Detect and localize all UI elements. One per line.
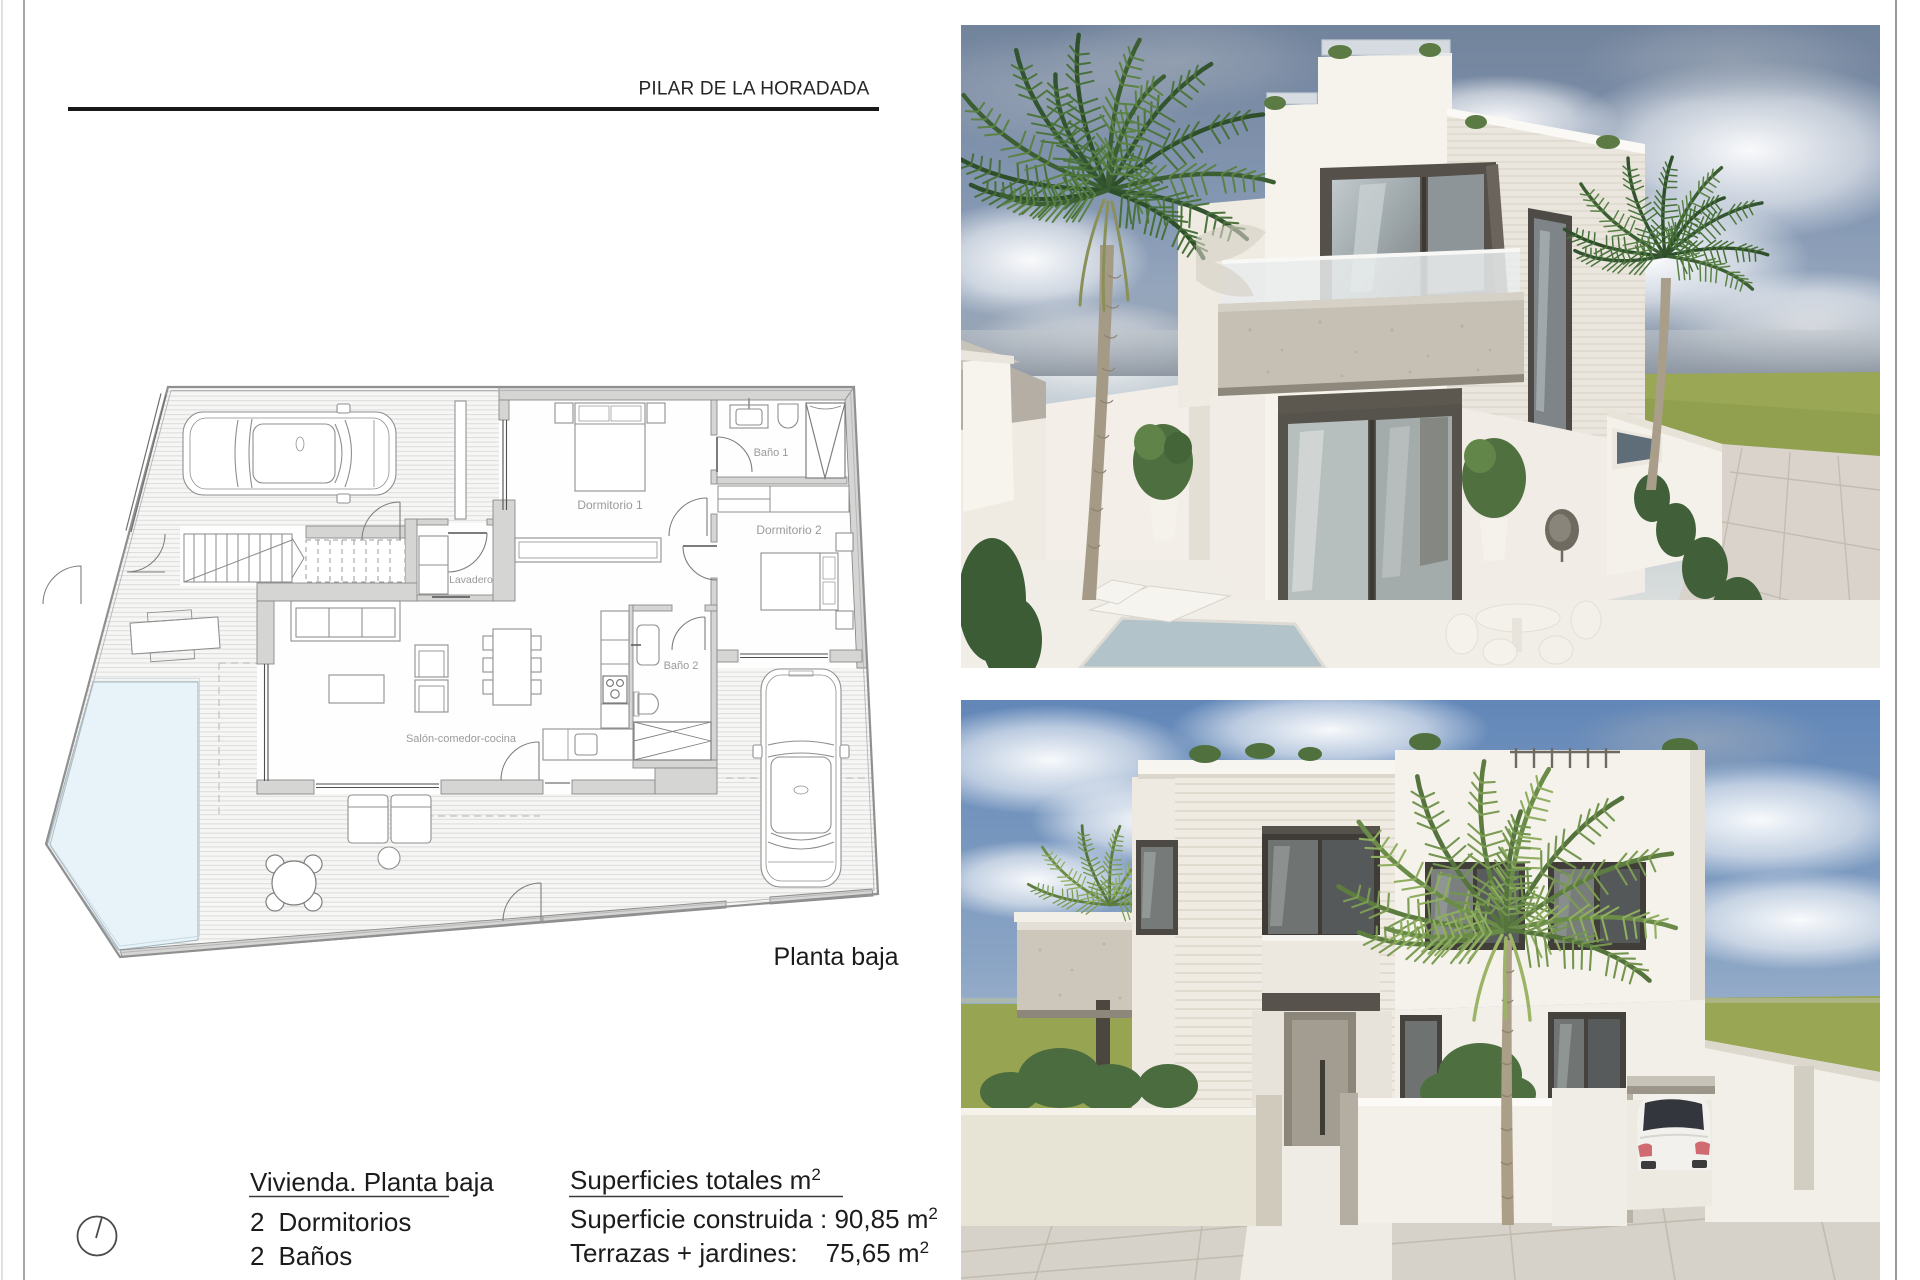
svg-text:Planta baja: Planta baja (773, 943, 898, 971)
svg-text:Salón-comedor-cocina: Salón-comedor-cocina (406, 733, 517, 745)
svg-text:Superficies totales m2: Superficies totales m2 (570, 1165, 821, 1195)
svg-text:Vivienda. Planta baja: Vivienda. Planta baja (250, 1167, 494, 1197)
svg-text:Baño 1: Baño 1 (754, 447, 789, 459)
svg-text:PILAR DE LA HORADADA: PILAR DE LA HORADADA (638, 79, 869, 100)
svg-text:2Dormitorios: 2Dormitorios (250, 1207, 411, 1237)
svg-text:Baño 2: Baño 2 (664, 660, 699, 672)
svg-text:Dormitorio 2: Dormitorio 2 (756, 523, 822, 537)
svg-text:Terrazas + jardines:75,65 m2: Terrazas + jardines:75,65 m2 (570, 1238, 929, 1268)
svg-text:Dormitorio 1: Dormitorio 1 (577, 498, 643, 512)
svg-text:2Baños: 2Baños (250, 1241, 352, 1271)
svg-text:Lavadero: Lavadero (449, 574, 493, 586)
svg-text:Superficie construida : 90,85: Superficie construida : 90,85 m2 (570, 1204, 938, 1234)
